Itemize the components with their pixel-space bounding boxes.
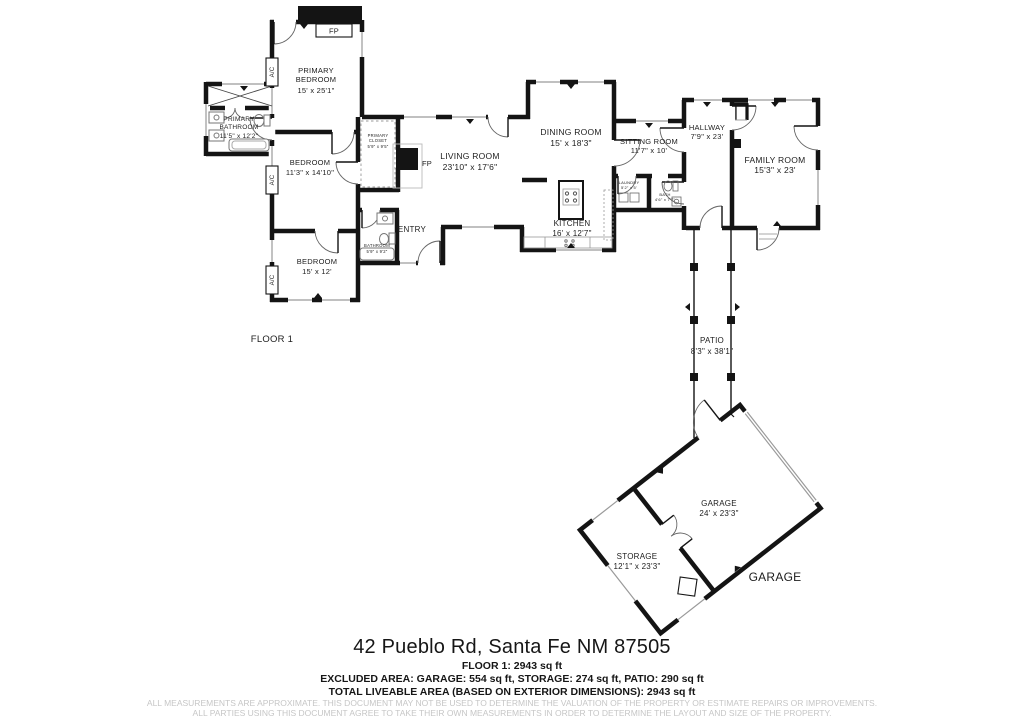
room-name: CLOSET: [369, 138, 387, 143]
room-label-bath: BATH 4'6" x 7'7": [655, 192, 676, 202]
garage-wing-label: GARAGE: [749, 570, 802, 584]
room-name: DINING ROOM: [540, 127, 601, 137]
pantry-cabinet: [604, 190, 613, 240]
disclaimer-line: ALL PARTIES USING THIS DOCUMENT AGREE TO…: [0, 708, 1024, 718]
room-name: BATHROOM: [364, 243, 390, 248]
room-name: HALLWAY: [689, 123, 725, 132]
room-dims: 11'7" x 10': [631, 146, 668, 155]
room-name: BEDROOM: [290, 158, 331, 167]
room-name: SITTING ROOM: [620, 137, 678, 146]
patio-structure: [685, 230, 740, 438]
room-dims: 15' x 18'3": [550, 138, 592, 148]
dryer: [630, 193, 639, 202]
room-dims: 11'5" x 12'2": [220, 133, 259, 140]
fp-label: FP: [422, 159, 432, 168]
floor-label: FLOOR 1: [251, 334, 293, 345]
room-dims: 5'9" x 9'2": [366, 249, 387, 254]
room-dims: 11'3" x 14'10": [286, 168, 334, 177]
room-dims: 23'10" x 17'6": [443, 162, 498, 172]
room-label-sitting-room: SITTING ROOM 11'7" x 10': [620, 137, 678, 155]
toilet: [264, 115, 270, 126]
ac-label: A/C: [270, 66, 276, 77]
room-name: ENTRY: [398, 225, 427, 234]
room-dims: 15'3" x 23': [754, 165, 796, 175]
property-address: 42 Pueblo Rd, Santa Fe NM 87505: [0, 636, 1024, 659]
room-label-entry: ENTRY: [398, 225, 427, 234]
room-label-bedroom-north: BEDROOM 11'3" x 14'10": [286, 158, 334, 177]
room-label-kitchen: KITCHEN 16' x 12'7": [552, 219, 591, 238]
kitchen-counter: [524, 237, 612, 248]
room-dims: 4'6" x 7'7": [655, 197, 676, 202]
room-label-patio: PATIO 8'3" x 38'1": [691, 336, 733, 356]
vanity-sink: [377, 213, 393, 224]
room-name: STORAGE: [617, 552, 658, 561]
vanity-sink: [209, 112, 224, 123]
disclaimer-line: ALL MEASUREMENTS ARE APPROXIMATE. THIS D…: [0, 698, 1024, 708]
room-label-hallway: HALLWAY 7'9" x 23': [689, 123, 725, 141]
living-fireplace-block: [396, 148, 418, 170]
room-dims: 5'2" x 5': [621, 185, 637, 190]
patio-posts: [685, 263, 740, 381]
room-dims: 16' x 12'7": [552, 229, 591, 238]
room-name: PRIMARY: [298, 66, 334, 75]
room-name: LIVING ROOM: [440, 151, 499, 161]
room-dims: 24' x 23'3": [699, 509, 738, 518]
room-dims: 8'3" x 38'1": [691, 347, 733, 356]
room-dims: 12'1" x 23'3": [613, 562, 660, 571]
cooktop: [563, 189, 579, 205]
room-dims: 7'9" x 23': [691, 132, 724, 141]
total-area-line: TOTAL LIVEABLE AREA (BASED ON EXTERIOR D…: [0, 686, 1024, 698]
closet-shelving: [361, 121, 395, 187]
room-label-family-room: FAMILY ROOM 15'3" x 23': [744, 155, 805, 175]
room-label-laundry: LAUNDRY 5'2" x 5': [619, 180, 640, 190]
fp-label: FP: [329, 27, 339, 36]
excluded-area-line: EXCLUDED AREA: GARAGE: 554 sq ft, STORAG…: [0, 673, 1024, 685]
room-dims: 15' x 25'1": [297, 86, 334, 95]
ac-label: A/C: [270, 274, 276, 285]
room-label-living-room: LIVING ROOM 23'10" x 17'6": [440, 151, 499, 172]
room-name: BEDROOM: [296, 75, 337, 84]
room-label-garage: GARAGE 24' x 23'3": [699, 499, 738, 518]
room-dims: 15' x 12': [302, 267, 332, 276]
ac-label: A/C: [270, 174, 276, 185]
room-label-bathroom: BATHROOM 5'9" x 9'2": [364, 243, 390, 254]
room-label-storage: STORAGE 12'1" x 23'3": [613, 552, 660, 571]
washer: [619, 193, 628, 202]
room-label-primary-bathroom: PRIMARY BATHROOM 11'5" x 12'2": [219, 116, 258, 140]
floor-area-line: FLOOR 1: 2943 sq ft: [0, 660, 1024, 672]
room-labels: PRIMARY BEDROOM 15' x 25'1" PRIMARY BATH…: [219, 66, 805, 584]
room-label-dining-room: DINING ROOM 15' x 18'3": [540, 127, 601, 148]
room-label-primary-closet: PRIMARY CLOSET 5'9" x 9'5": [367, 133, 388, 149]
floor-plan: FP FP A/C A/C A/C: [0, 0, 1024, 724]
room-dims: 5'9" x 9'5": [367, 144, 388, 149]
room-label-bedroom-south: BEDROOM 15' x 12': [297, 257, 338, 276]
room-name: GARAGE: [701, 499, 737, 508]
room-name: PATIO: [700, 336, 724, 345]
door-steps: [759, 234, 777, 239]
room-name: BEDROOM: [297, 257, 338, 266]
water-heater: [678, 577, 697, 596]
room-name: PRIMARY: [223, 116, 255, 123]
room-label-primary-bedroom: PRIMARY BEDROOM 15' x 25'1": [296, 66, 337, 95]
room-name: BATHROOM: [219, 124, 258, 131]
room-name: KITCHEN: [554, 219, 591, 228]
room-name: FAMILY ROOM: [744, 155, 805, 165]
